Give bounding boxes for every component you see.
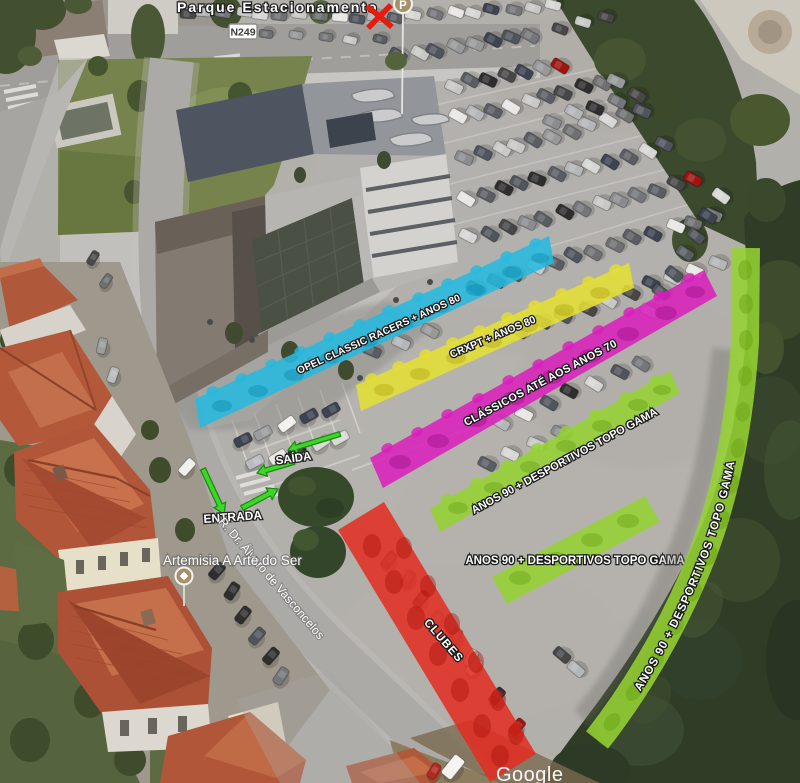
svg-text:Parque Estacionamento: Parque Estacionamento — [177, 0, 379, 15]
svg-text:Artemisia A Arte do Ser: Artemisia A Arte do Ser — [163, 553, 302, 568]
svg-text:P: P — [399, 0, 407, 12]
svg-text:ANOS 90 + DESPORTIVOS TOPO GAM: ANOS 90 + DESPORTIVOS TOPO GAMA — [465, 555, 684, 567]
svg-text:N249: N249 — [230, 27, 255, 39]
svg-text:Google: Google — [496, 764, 564, 783]
